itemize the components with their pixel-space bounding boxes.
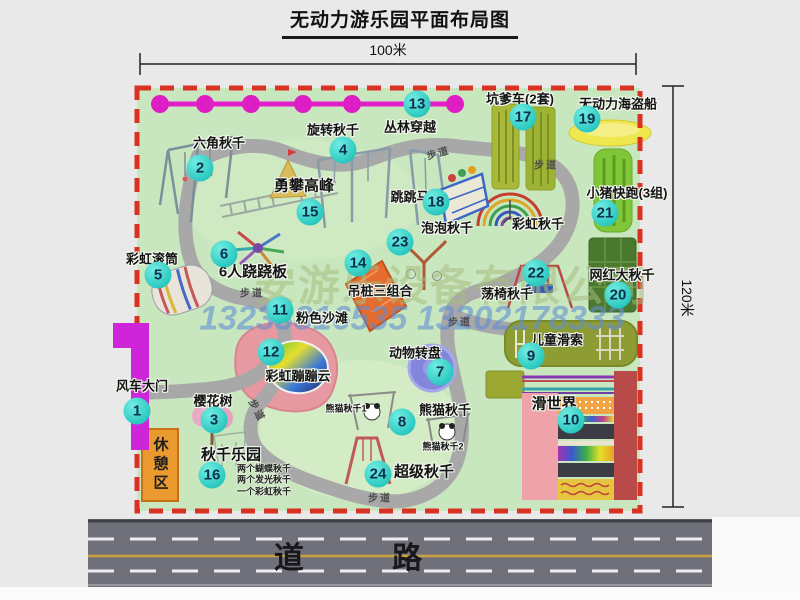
badge-14: 14 [345, 250, 372, 277]
badge-6: 6 [211, 241, 238, 268]
label-big-swing: 网红大秋千 [589, 269, 654, 282]
label-hexagon-swing: 六角秋千 [193, 137, 245, 150]
page-title: 无动力游乐园平面布局图 [282, 5, 518, 39]
trail-label: 步道 [368, 490, 392, 505]
label-panda-swing: 熊猫秋千 [419, 404, 471, 417]
label-animal-turntable: 动物转盘 [389, 347, 441, 360]
road-label: 道 路 [274, 533, 462, 577]
swing-paradise-note-1: 两个蝴蝶秋千 [237, 465, 291, 474]
label-super-swing: 超级秋千 [394, 465, 454, 480]
badge-13: 13 [404, 91, 431, 118]
badge-20: 20 [605, 282, 632, 309]
label-seesaw: 6人跷跷板 [219, 265, 287, 280]
label-windmill-gate: 风车大门 [116, 380, 168, 393]
badge-21: 21 [592, 200, 619, 227]
badge-2: 2 [187, 155, 214, 182]
swing-paradise-note-3: 一个彩虹秋千 [237, 488, 291, 497]
badge-1: 1 [124, 398, 151, 425]
label-climbing-peak: 勇攀高峰 [274, 179, 334, 194]
badge-9: 9 [518, 343, 545, 370]
label-hanging-piles: 吊桩三组合 [347, 285, 412, 298]
label-panda-swing-2: 熊猫秋千2 [422, 443, 463, 452]
badge-15: 15 [297, 199, 324, 226]
height-dimension-label: 120米 [677, 279, 697, 316]
badge-16: 16 [199, 462, 226, 489]
label-bubble-swing: 泡泡秋千 [421, 222, 473, 235]
trail-label: 步道 [448, 314, 472, 329]
label-pig-run: 小猪快跑(3组) [587, 187, 668, 200]
badge-24: 24 [365, 461, 392, 488]
badge-11: 11 [267, 297, 294, 324]
badge-10: 10 [558, 407, 585, 434]
badge-19: 19 [574, 106, 601, 133]
badge-7: 7 [427, 359, 454, 386]
label-rainbow-swing: 彩虹秋千 [512, 218, 564, 231]
park-layout-map: 无动力游乐园平面布局图 100米 120米 安游乐设备有限公司 13233816… [0, 0, 800, 600]
badge-12: 12 [258, 339, 285, 366]
swing-paradise-note-2: 两个发光秋千 [237, 476, 291, 485]
width-dimension-label: 100米 [369, 40, 406, 60]
label-swing-paradise: 秋千乐园 [201, 448, 261, 463]
rest-area-label: 休憩区 [150, 437, 171, 494]
label-swing-chair: 荡椅秋千 [481, 288, 533, 301]
trail-label: 步道 [240, 285, 264, 300]
badge-17: 17 [510, 104, 537, 131]
badge-5: 5 [145, 262, 172, 289]
badge-22: 22 [523, 260, 550, 287]
label-jungle-crossing: 丛林穿越 [384, 121, 436, 134]
badge-18: 18 [423, 189, 450, 216]
badge-23: 23 [387, 229, 414, 256]
trail-label: 步道 [534, 157, 558, 172]
label-rainbow-cloud: 彩虹蹦蹦云 [265, 370, 330, 383]
badge-8: 8 [389, 409, 416, 436]
badge-4: 4 [330, 137, 357, 164]
label-panda-swing-1: 熊猫秋千1 [325, 405, 366, 414]
badge-3: 3 [201, 407, 228, 434]
label-pink-beach: 粉色沙滩 [296, 312, 348, 325]
label-rotating-swing: 旋转秋千 [307, 124, 359, 137]
